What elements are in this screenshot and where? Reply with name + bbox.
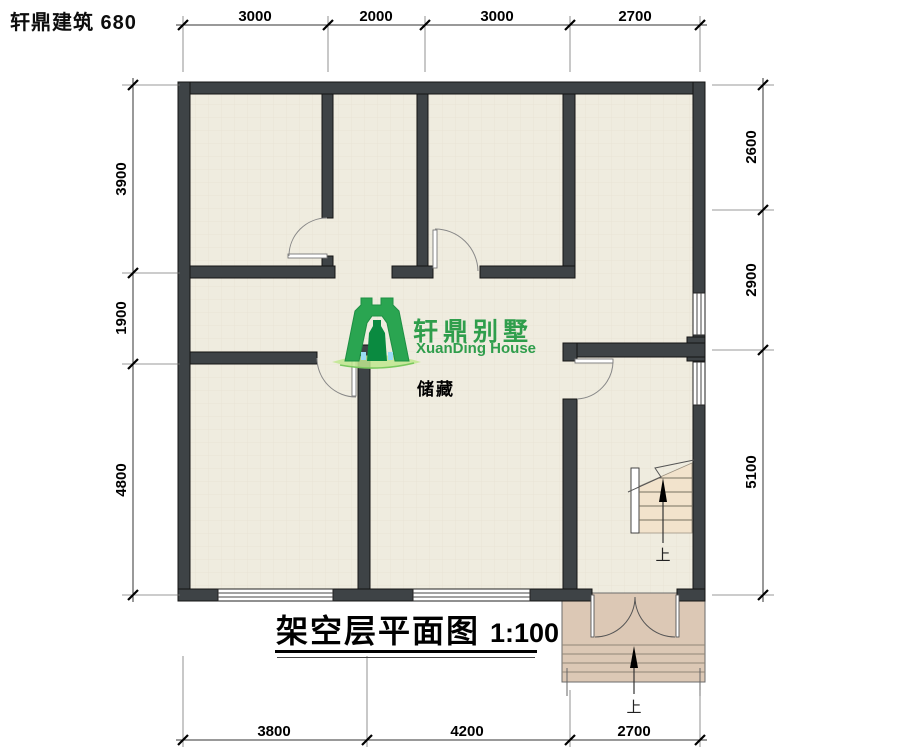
- dimension-right: 2600 2900 5100: [712, 78, 774, 602]
- logo-brand-en: XuanDing House: [416, 340, 536, 357]
- dim-bottom-1: 4200: [450, 723, 483, 740]
- plan-title-block: 架空层平面图1:100: [276, 606, 540, 652]
- plan-title: 架空层平面图: [276, 613, 480, 649]
- dim-bottom-2: 2700: [617, 723, 650, 740]
- window-right-lower: [693, 362, 705, 405]
- stair-up-label: 上: [655, 547, 670, 564]
- dim-left-1: 1900: [113, 301, 130, 334]
- dim-right-1: 2900: [743, 263, 760, 296]
- storage-room-label: 储藏: [417, 375, 455, 400]
- dim-right-2: 5100: [743, 455, 760, 488]
- title-underline-thick: [275, 650, 537, 653]
- plan-scale: 1:100: [490, 618, 559, 648]
- dim-right-0: 2600: [743, 130, 760, 163]
- dimension-top: 3000 2000 3000 2700: [176, 8, 707, 72]
- window-bottom-left: [218, 589, 333, 601]
- entry-up-label: 上: [626, 699, 641, 716]
- dim-top-0: 3000: [238, 8, 271, 25]
- dimension-left: 3900 1900 4800: [113, 78, 180, 602]
- drawing-header: 轩鼎建筑 680: [10, 6, 137, 35]
- title-underline-thin: [277, 657, 535, 658]
- window-right-upper: [693, 293, 705, 335]
- dim-left-2: 4800: [113, 463, 130, 496]
- dim-bottom-0: 3800: [257, 723, 290, 740]
- window-bottom-center: [413, 589, 530, 601]
- dim-top-2: 3000: [480, 8, 513, 25]
- dim-left-0: 3900: [113, 162, 130, 195]
- dim-top-1: 2000: [359, 8, 392, 25]
- dim-top-3: 2700: [618, 8, 651, 25]
